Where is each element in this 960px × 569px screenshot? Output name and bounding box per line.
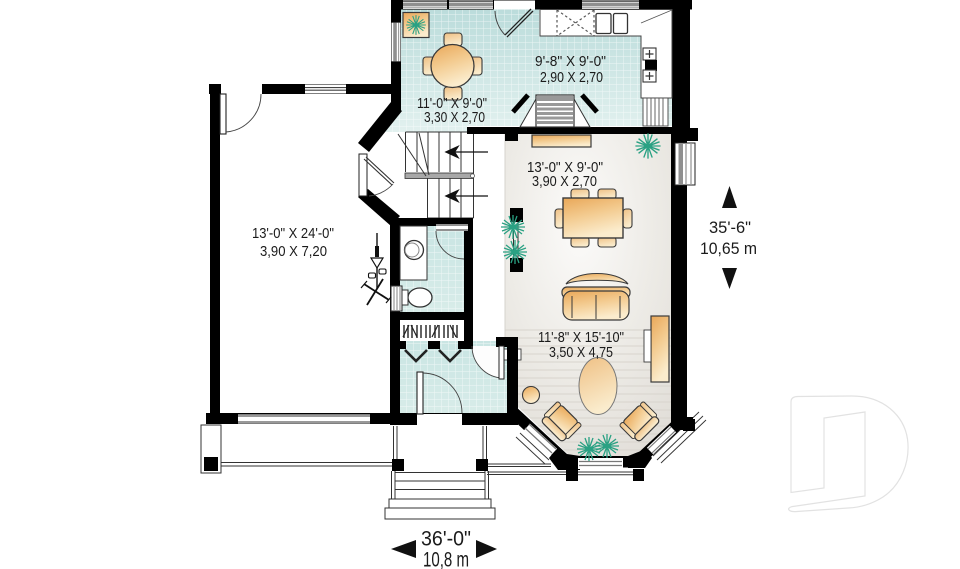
svg-text:3,30 X 2,70: 3,30 X 2,70 <box>424 109 485 126</box>
svg-text:36'-0": 36'-0" <box>421 528 471 551</box>
svg-text:13'-0" X 24'-0": 13'-0" X 24'-0" <box>252 225 334 242</box>
svg-text:9'-8" X 9'-0": 9'-8" X 9'-0" <box>535 53 606 70</box>
svg-text:10,65 m: 10,65 m <box>700 239 757 258</box>
svg-text:10,8 m: 10,8 m <box>423 549 469 569</box>
svg-text:2,90 X 2,70: 2,90 X 2,70 <box>540 69 603 86</box>
svg-text:3,90 X 7,20: 3,90 X 7,20 <box>260 243 327 260</box>
svg-text:3,90 X 2,70: 3,90 X 2,70 <box>532 173 597 190</box>
svg-text:3,50 X 4,75: 3,50 X 4,75 <box>549 344 613 361</box>
svg-text:35'-6": 35'-6" <box>709 218 751 237</box>
